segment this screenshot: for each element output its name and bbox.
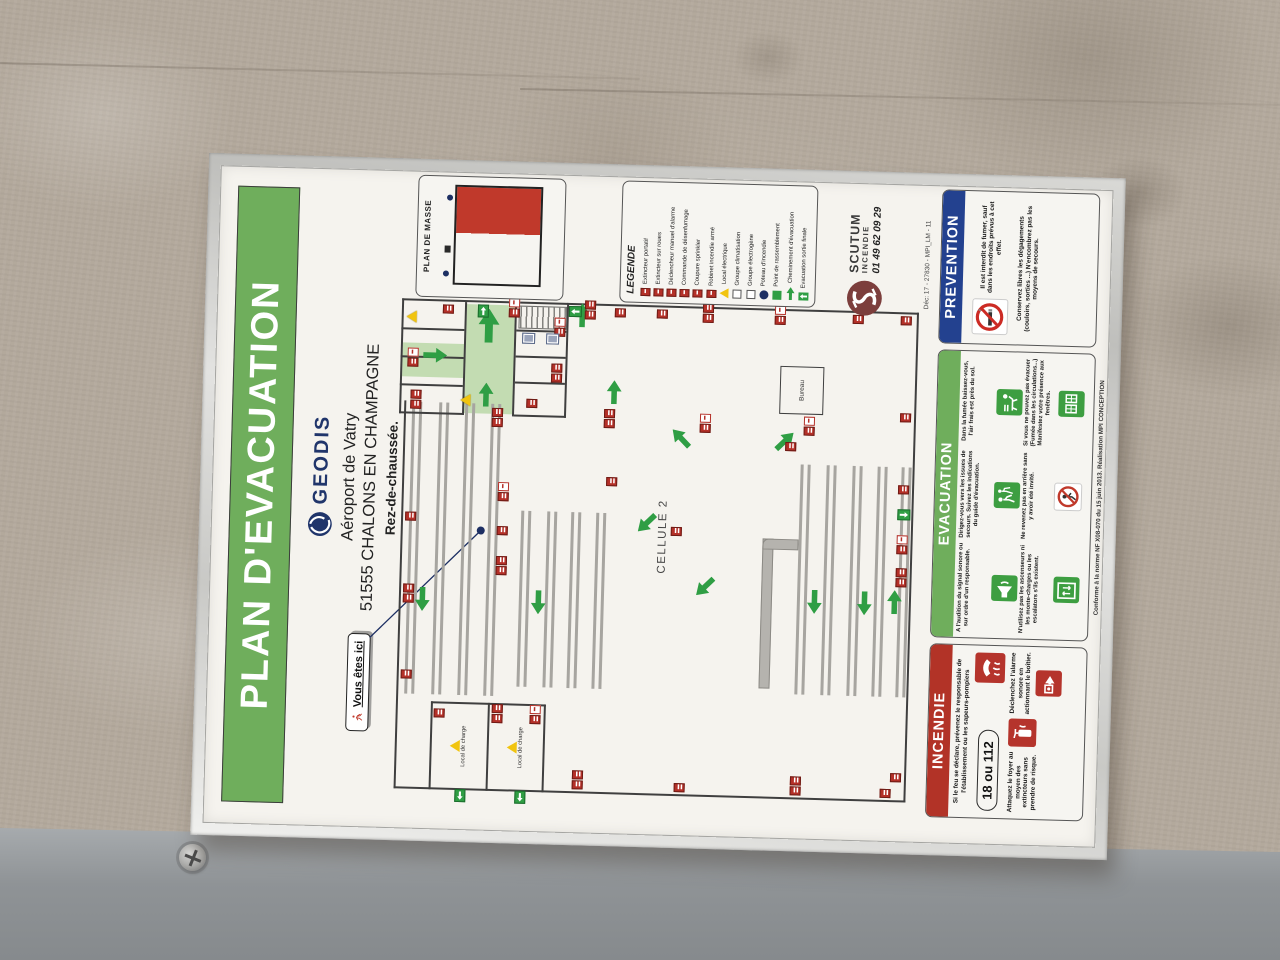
extinguisher-marker (410, 400, 421, 409)
site-overview-box: PLAN DE MASSE (415, 175, 566, 301)
legend-item-label: Poteau d'incendie (761, 240, 768, 287)
fire-instruction-3: Déclenchez l'alarme sonore en actionnant… (1009, 651, 1034, 715)
evacuation-arrow (414, 587, 430, 611)
legend-green-icon (772, 291, 781, 300)
hazard-triangle-icon (460, 394, 470, 406)
fire-panel: INCENDIE Si le feu se déclare, prévenez … (925, 643, 1088, 821)
extinguisher-marker (410, 390, 421, 399)
evacuation-instruction-text: Dans la fumée baissez-vous, l'air frais … (961, 356, 977, 446)
exit-marker (897, 509, 910, 520)
evacuation-arrow (530, 590, 546, 614)
scutum-logo-icon (845, 279, 884, 318)
photo-scene: PLAN D'EVACUATION GEODIS Aéroport de Vat… (0, 0, 1280, 960)
equipment-marker (700, 414, 711, 423)
extinguisher-marker (785, 442, 796, 451)
evacuation-instruction-text: Dirigez-vous vers les issues de secours.… (959, 449, 982, 539)
lift-icon (1053, 577, 1080, 604)
storage-rack (483, 404, 501, 696)
poster-frame: PLAN D'EVACUATION GEODIS Aéroport de Vat… (190, 153, 1126, 860)
extinguisher-marker (896, 545, 907, 554)
extinguisher-marker (790, 776, 801, 785)
storage-rack (516, 511, 531, 687)
legend-item-label: Coupure sprinkler (695, 239, 702, 286)
extinguisher-marker (443, 304, 454, 313)
evacuation-instruction-text: Si vous ne pouvez pas évacuer (Fumée dan… (1023, 358, 1053, 448)
legend-warn-icon (720, 288, 729, 298)
extinguisher-marker (804, 427, 815, 436)
extinguisher-marker (492, 408, 503, 417)
legend-red-icon (680, 289, 690, 297)
cell-label: CELLULE 2 (656, 499, 670, 574)
legend-item-label: Cheminement d'évacuation (787, 212, 795, 283)
scutum-block: SCUTUM INCENDIE 01 49 62 09 29 (845, 185, 887, 318)
extinguisher-marker (496, 566, 507, 575)
evacuation-arrow (807, 590, 823, 614)
storage-rack (404, 402, 422, 694)
charging-room-label: Local de charge (460, 724, 468, 768)
extinguisher-marker (496, 556, 507, 565)
evacuation-arrow (691, 573, 719, 600)
evacuation-plan-poster: PLAN D'EVACUATION GEODIS Aéroport de Vat… (190, 153, 1126, 860)
office-room-label: Bureau (798, 380, 806, 401)
extinguisher-marker (604, 419, 615, 428)
screw (179, 844, 206, 871)
legend-item-label: Déclencheur manuel d'alarme (669, 207, 677, 285)
evacuation-instruction: Ne revenez pas en arrière sans y avoir é… (1021, 451, 1083, 542)
extinguisher-marker (604, 409, 615, 418)
exit-marker (478, 304, 489, 317)
noreturn-icon (1054, 483, 1083, 512)
prevention-panel: PREVENTION Il est interdit de fumer, sau… (938, 189, 1100, 347)
extinguisher-marker (434, 708, 445, 717)
storage-rack (846, 466, 862, 696)
legend-red-icon (706, 290, 716, 298)
extinguisher-marker (529, 715, 540, 724)
horn-icon (991, 575, 1018, 602)
storage-rack (457, 403, 475, 695)
extinguisher-marker (674, 783, 685, 792)
emergency-number: 18 ou 112 (976, 730, 999, 811)
prevention-text-1: Il est interdit de fumer, sauf dans les … (979, 200, 1004, 294)
extinguisher-marker (703, 314, 714, 323)
storage-rack (566, 512, 581, 688)
legend-item-label: Local électrique (721, 243, 728, 284)
legend-item-label: Groupe climatisation (735, 232, 742, 286)
map-dot (447, 194, 453, 200)
legend-box: LEGENDE Extincteur portatifExtincteur su… (619, 180, 818, 307)
extinguisher-marker (900, 413, 911, 422)
equipment-marker (509, 298, 520, 307)
legend-item-label: Point de rassemblement (774, 223, 782, 287)
evacuation-arrow (857, 591, 873, 615)
prevention-text-2: Conservez libres les dégagements (couloi… (1015, 201, 1042, 336)
evacuation-instruction-text: N'utilisez pas les ascenseurs ni les mon… (1018, 544, 1041, 634)
evacuation-arrow (887, 590, 903, 614)
evacuation-instruction: N'utilisez pas les ascenseurs ni les mon… (1018, 544, 1080, 635)
extinguisher-marker (492, 418, 503, 427)
extinguisher-marker (509, 308, 520, 317)
legend-sq-icon (746, 290, 755, 299)
map-dot (477, 526, 485, 534)
equipment-marker (897, 535, 908, 544)
poster-board: PLAN D'EVACUATION GEODIS Aéroport de Vat… (202, 165, 1113, 848)
extinguisher-marker (895, 578, 906, 587)
legend-arrow-icon (785, 287, 794, 300)
wall-segment (401, 327, 464, 331)
evacuation-instruction: Dirigez-vous vers les issues de secours.… (959, 449, 1021, 540)
legend-item: Evacuation sortie finale (797, 186, 813, 300)
storage-rack (591, 513, 606, 689)
extinguisher-marker (403, 593, 414, 602)
extinguisher-marker (551, 373, 562, 382)
hazard-triangle-icon (506, 741, 516, 753)
equipment-marker (498, 482, 509, 491)
extinguisher-marker (789, 786, 800, 795)
site-overview-label: PLAN DE MASSE (421, 176, 433, 296)
extinguisher-marker (775, 316, 786, 325)
legend-item-label: Robinet incendie armé (708, 227, 716, 286)
equipment-marker (775, 306, 786, 315)
storage-rack (871, 467, 887, 697)
legend-sq-icon (733, 290, 742, 299)
extinguisher-marker (901, 316, 912, 325)
lift-marker (546, 333, 559, 344)
wall-segment (394, 786, 906, 802)
scutum-phone: 01 49 62 09 29 (871, 207, 884, 274)
extinguisher-marker (898, 485, 909, 494)
exit-marker (454, 789, 465, 802)
exit-marker (569, 306, 582, 317)
wall-segment (400, 383, 463, 387)
extinguisher-marker (671, 527, 682, 536)
fire-instruction-1: Si le feu se déclare, prévenez le respon… (952, 650, 972, 812)
extinguisher-marker (703, 304, 714, 313)
extinguisher-icon (1008, 718, 1037, 747)
extinguisher-marker (585, 310, 596, 319)
evacuation-instruction: A l'audition du signal sonore ou sur ord… (956, 543, 1018, 634)
evacuation-arrow (423, 347, 447, 363)
storage-rack (431, 402, 449, 694)
wall-segment (514, 414, 566, 417)
extinguisher-marker (491, 714, 502, 723)
extinguisher-marker (526, 399, 537, 408)
legend-item-label: Extincteur sur roues (655, 232, 662, 285)
evacuation-arrow (606, 380, 622, 404)
legend-item-label: Groupe électrogène (748, 234, 755, 286)
legend-red-icon (666, 289, 676, 297)
equipment-marker (408, 347, 419, 356)
equipment-marker (530, 705, 541, 714)
legend-items: Extincteur portatifExtincteur sur rouesD… (638, 182, 813, 301)
window-icon (1058, 390, 1085, 417)
exit-marker (514, 791, 525, 804)
extinguisher-marker (890, 773, 901, 782)
extinguisher-marker (606, 477, 617, 486)
evacuation-panel: EVACUATION A l'audition du signal sonore… (930, 349, 1096, 641)
extinguisher-marker (407, 357, 418, 366)
evacuation-instruction-text: Ne revenez pas en arrière sans y avoir é… (1021, 451, 1037, 541)
extinguisher-marker (896, 568, 907, 577)
guard-rail (758, 538, 773, 688)
evacuation-grid: A l'audition du signal sonore ou sur ord… (953, 351, 1089, 640)
extinguisher-marker (498, 492, 509, 501)
site-overview-map (453, 185, 544, 287)
evacuation-arrow (478, 382, 494, 406)
extinguisher-marker (657, 309, 668, 318)
extinguisher-marker (585, 300, 596, 309)
extinguisher-marker (403, 583, 414, 592)
no-smoking-icon (971, 298, 1008, 335)
extinguisher-marker (572, 780, 583, 789)
guard-rail (762, 538, 798, 550)
legend-red-icon (693, 289, 703, 297)
storage-rack (794, 464, 810, 694)
legend-red-icon (640, 288, 650, 296)
legend-item-label: Commande de désenfumage (682, 209, 690, 285)
extinguisher-marker (405, 511, 416, 520)
extinguisher-marker (492, 704, 503, 713)
office-room: Bureau (779, 366, 824, 415)
evacuation-instruction-text: A l'audition du signal sonore ou sur ord… (956, 543, 972, 633)
extinguisher-marker (551, 363, 562, 372)
charging-room-label: Local de charge (517, 726, 525, 770)
extinguisher-marker (615, 308, 626, 317)
equipment-marker (554, 318, 565, 327)
legend-exit-icon (798, 292, 808, 300)
hazard-triangle-icon (449, 740, 459, 752)
map-dot (443, 270, 449, 276)
extinguisher-marker (879, 789, 890, 798)
storage-rack (820, 465, 836, 695)
equipment-marker (804, 417, 815, 426)
legend-item-label: Evacuation sortie finale (800, 228, 808, 289)
legend-red-icon (653, 288, 663, 296)
crawl-icon (996, 389, 1023, 416)
extinguisher-marker (497, 526, 508, 535)
wall-segment (516, 355, 566, 358)
fire-instruction-2: Attaquez le foyer au moyen des extincteu… (1006, 750, 1038, 814)
extinguisher-marker (700, 424, 711, 433)
legend-title: LEGENDE (625, 182, 639, 294)
evacuation-instruction: Si vous ne pouvez pas évacuer (Fumée dan… (1023, 358, 1085, 449)
evacuation-arrow (667, 424, 694, 452)
legend-item-label: Extincteur portatif (642, 238, 649, 284)
evacuation-instruction: Dans la fumée baissez-vous, l'air frais … (961, 356, 1023, 447)
phone-fire-icon (975, 652, 1006, 683)
legend-dot-icon (759, 290, 768, 299)
lift-marker (522, 333, 535, 344)
extinguisher-marker (401, 669, 412, 678)
extinguisher-marker (572, 770, 583, 779)
alarm-button-icon (1035, 671, 1062, 698)
guide-icon (994, 482, 1021, 509)
wall-segment (399, 411, 464, 415)
hazard-triangle-icon (407, 310, 417, 322)
map-mark (445, 245, 451, 252)
